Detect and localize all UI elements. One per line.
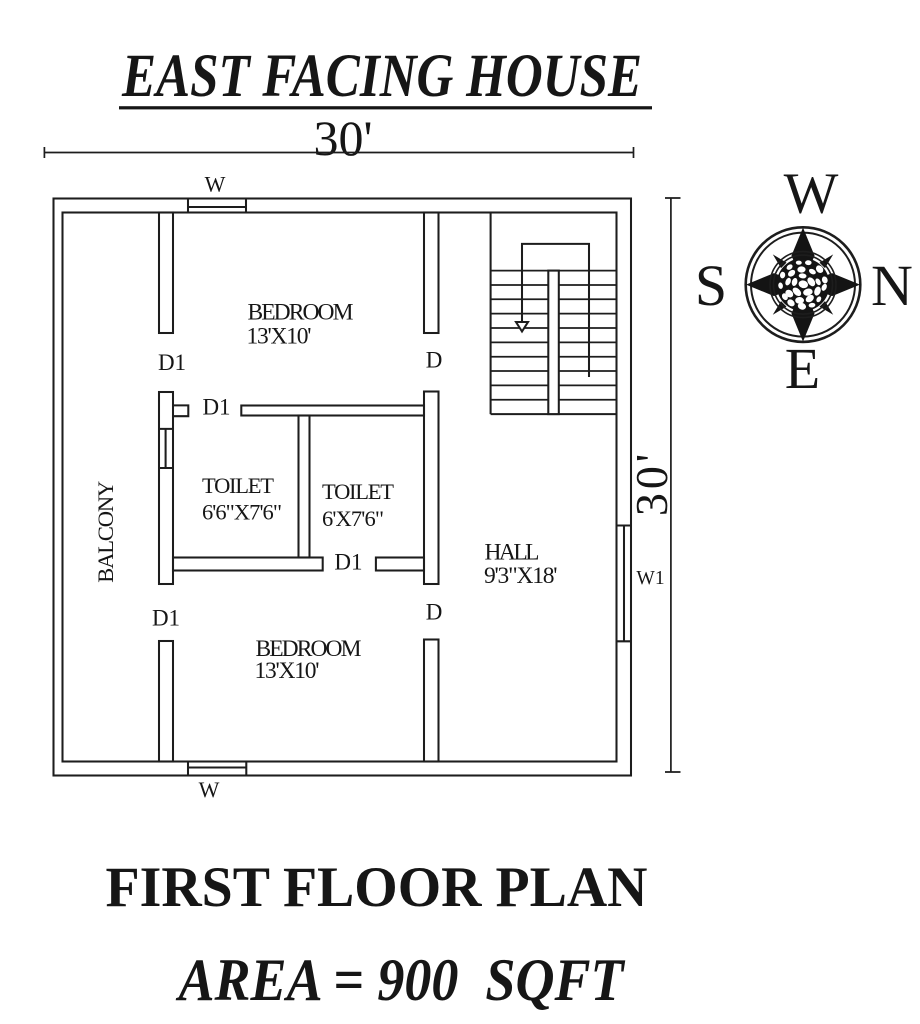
svg-text:13'X10': 13'X10' <box>255 658 320 684</box>
svg-text:D1: D1 <box>334 550 362 575</box>
svg-text:W: W <box>205 172 226 197</box>
svg-text:D1: D1 <box>202 395 230 420</box>
svg-text:6'X7'6": 6'X7'6" <box>322 506 384 531</box>
svg-text:BEDROOM: BEDROOM <box>248 300 354 326</box>
svg-text:S: S <box>695 253 727 318</box>
svg-text:BALCONY: BALCONY <box>93 481 118 583</box>
svg-text:TOILET: TOILET <box>322 479 394 504</box>
svg-text:D: D <box>426 600 443 625</box>
svg-text:30': 30' <box>313 110 372 166</box>
svg-text:6'6"X7'6": 6'6"X7'6" <box>202 500 282 525</box>
svg-text:FIRST FLOOR PLAN: FIRST FLOOR PLAN <box>106 856 648 919</box>
svg-text:30': 30' <box>626 450 677 516</box>
svg-text:TOILET: TOILET <box>202 473 274 498</box>
svg-text:W: W <box>784 161 839 226</box>
svg-text:W1: W1 <box>636 568 664 589</box>
svg-text:EAST FACING HOUSE: EAST FACING HOUSE <box>121 43 642 110</box>
svg-text:N: N <box>871 253 913 318</box>
svg-text:D1: D1 <box>152 606 180 631</box>
svg-text:E: E <box>785 336 820 401</box>
svg-text:13'X10': 13'X10' <box>247 324 312 350</box>
svg-text:D: D <box>426 348 443 373</box>
svg-text:HALL: HALL <box>485 540 540 566</box>
svg-text:W: W <box>199 777 220 802</box>
svg-text:D1: D1 <box>158 350 186 375</box>
svg-text:9'3"X18': 9'3"X18' <box>484 563 558 589</box>
svg-text:AREA = 900 SQFT: AREA = 900 SQFT <box>175 947 626 1013</box>
